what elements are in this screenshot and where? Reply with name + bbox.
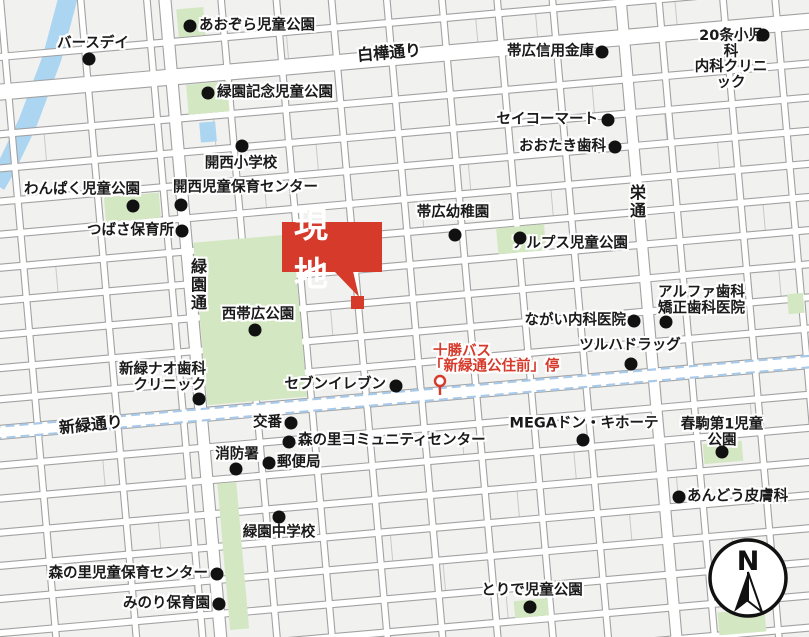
- poi-dot: [609, 141, 622, 154]
- street-label-sakae-dori: 栄通: [624, 184, 648, 220]
- poi-dot: [230, 463, 243, 476]
- poi-dot: [175, 199, 188, 212]
- map-canvas: N: [0, 0, 809, 637]
- site-marker: 現地: [282, 222, 382, 272]
- poi-dot: [193, 393, 206, 406]
- poi-dot: [577, 434, 590, 447]
- poi-dot: [596, 46, 609, 59]
- bus-stop-label-line2: 「新緑通公住前」停: [429, 355, 560, 376]
- poi-dot: [449, 229, 462, 242]
- map: N バースデイあおぞら児童公園緑園記念児童公園帯広信用金庫20条小児科 内科クリ…: [0, 0, 809, 637]
- pond: [199, 121, 217, 142]
- poi-dot: [184, 20, 197, 33]
- poi-dot: [757, 29, 770, 42]
- green-patch-right: [787, 293, 805, 314]
- compass: N: [710, 540, 786, 616]
- poi-dot: [83, 53, 96, 66]
- site-square: [351, 296, 364, 309]
- poi-dot: [625, 358, 638, 371]
- poi-dot: [628, 315, 641, 328]
- poi-dot: [716, 446, 729, 459]
- poi-dot: [263, 457, 276, 470]
- street-label-ryokuen-dori: 緑園通: [185, 258, 209, 312]
- poi-dot: [176, 225, 189, 238]
- poi-dot: [236, 140, 249, 153]
- poi-dot: [602, 114, 615, 127]
- poi-dot: [660, 316, 673, 329]
- poi-dot: [673, 491, 686, 504]
- poi-dot: [202, 87, 215, 100]
- poi-dot: [524, 601, 537, 614]
- poi-dot: [285, 417, 298, 430]
- poi-dot: [127, 200, 140, 213]
- poi-dot: [249, 324, 262, 337]
- poi-dot: [273, 511, 286, 524]
- poi-dot: [211, 568, 224, 581]
- poi-dot: [514, 232, 527, 245]
- poi-dot: [283, 436, 296, 449]
- poi-dot: [390, 380, 403, 393]
- poi-dot: [213, 598, 226, 611]
